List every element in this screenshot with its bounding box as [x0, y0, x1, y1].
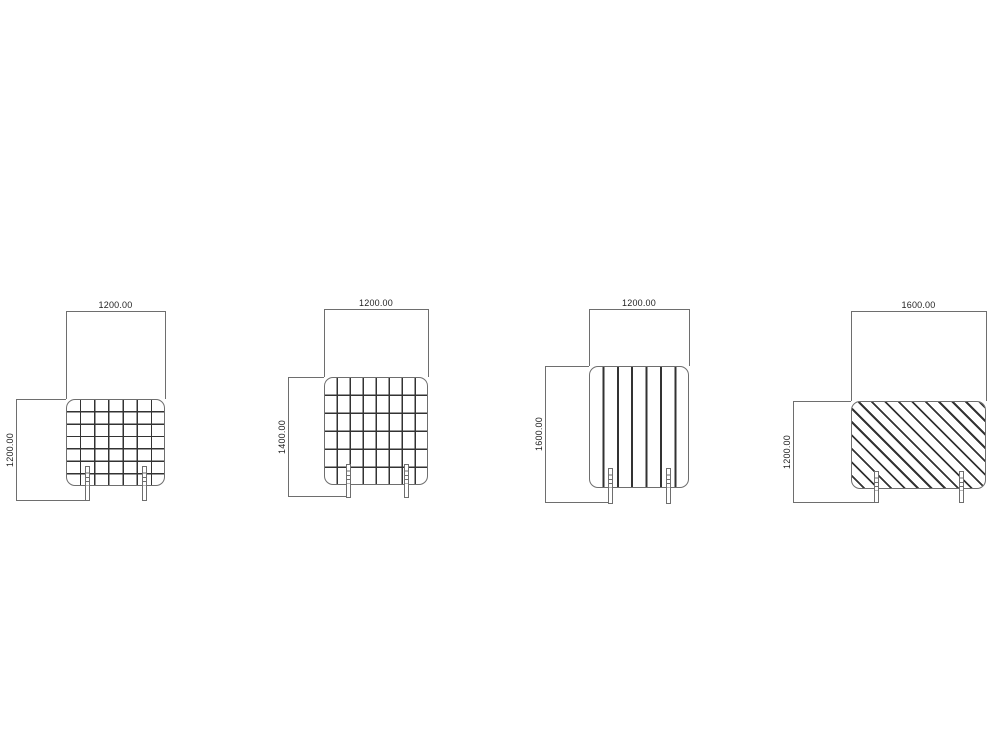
width-extension-line-right — [428, 309, 429, 377]
height-extension-line-bottom — [793, 502, 874, 503]
cad-drawing-canvas: 1200.00 1200.00 1200.00 1400.00 1200.00 — [0, 0, 1000, 755]
width-extension-line-left — [66, 311, 67, 399]
height-dimension-label: 1200.00 — [5, 433, 15, 467]
height-extension-line-top — [545, 366, 589, 367]
width-dimension-line — [66, 311, 165, 312]
width-dimension-label: 1200.00 — [66, 300, 165, 310]
height-dimension-line — [288, 377, 289, 497]
width-extension-line-left — [324, 309, 325, 377]
panel-foot-left — [346, 464, 351, 498]
wire-mesh-pattern — [67, 400, 164, 485]
panel-foot-right — [666, 468, 671, 504]
height-dimension-label: 1400.00 — [277, 420, 287, 454]
height-extension-line-top — [16, 399, 66, 400]
panel-foot-left — [874, 471, 879, 503]
panel-body — [589, 366, 689, 488]
height-dimension-label: 1200.00 — [782, 435, 792, 469]
height-dimension-line — [545, 366, 546, 503]
width-extension-line-left — [589, 309, 590, 366]
width-extension-line-right — [986, 311, 987, 401]
height-extension-line-bottom — [16, 500, 85, 501]
height-extension-line-bottom — [288, 496, 346, 497]
width-dimension-line — [324, 309, 428, 310]
vertical-slat-pattern — [590, 367, 688, 487]
width-dimension-label: 1200.00 — [324, 298, 428, 308]
height-dimension-line — [16, 399, 17, 501]
diagonal-hatch-pattern — [852, 402, 985, 488]
height-extension-line-bottom — [545, 502, 608, 503]
width-dimension-line — [851, 311, 986, 312]
panel-body — [324, 377, 428, 485]
panel-foot-left — [608, 468, 613, 504]
panel-foot-left — [85, 466, 90, 501]
height-extension-line-top — [288, 377, 324, 378]
width-dimension-line — [589, 309, 689, 310]
height-dimension-label: 1600.00 — [534, 417, 544, 451]
panel-foot-right — [142, 466, 147, 501]
wire-mesh-pattern — [325, 378, 427, 484]
panel-body — [66, 399, 165, 486]
panel-foot-right — [404, 464, 409, 498]
width-extension-line-left — [851, 311, 852, 401]
width-dimension-label: 1600.00 — [851, 300, 986, 310]
width-dimension-label: 1200.00 — [589, 298, 689, 308]
panel-foot-right — [959, 471, 964, 503]
width-extension-line-right — [165, 311, 166, 399]
panel-body — [851, 401, 986, 489]
height-extension-line-top — [793, 401, 851, 402]
width-extension-line-right — [689, 309, 690, 366]
height-dimension-line — [793, 401, 794, 503]
